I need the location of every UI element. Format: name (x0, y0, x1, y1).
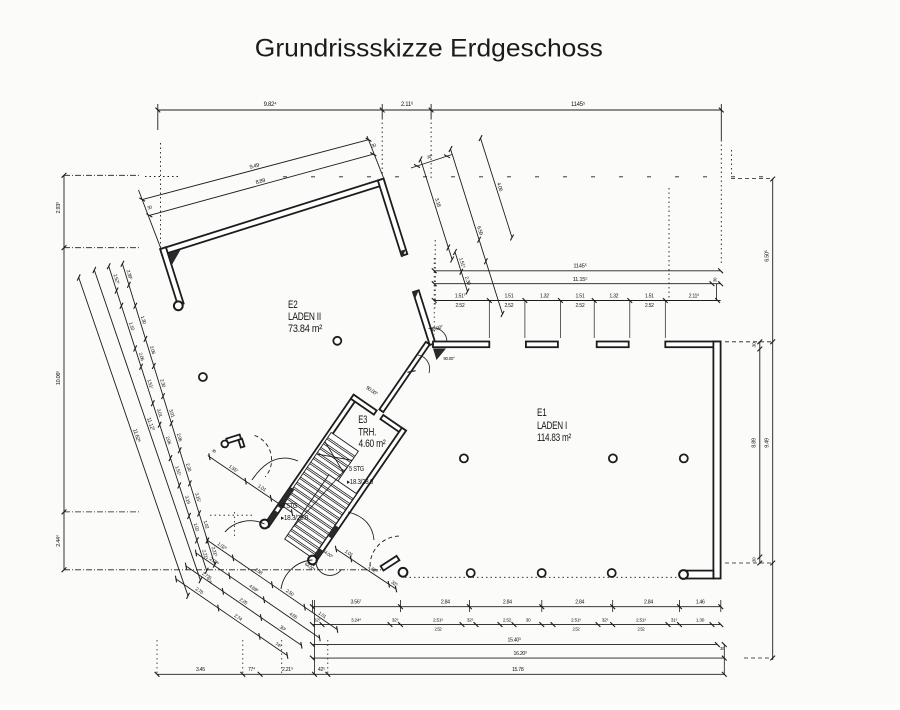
svg-text:TRH.: TRH. (358, 427, 376, 439)
svg-text:1145⁵: 1145⁵ (573, 263, 587, 270)
svg-text:2.84: 2.84 (575, 600, 584, 606)
svg-text:3.24⁴: 3.24⁴ (351, 618, 361, 624)
svg-text:1.51: 1.51 (576, 294, 585, 300)
svg-text:5 STG: 5 STG (349, 466, 364, 473)
svg-text:2.11⁶: 2.11⁶ (401, 101, 414, 108)
svg-text:2.52: 2.52 (638, 627, 646, 632)
svg-text:2.93³: 2.93³ (56, 202, 62, 214)
svg-text:2.51⁹: 2.51⁹ (636, 618, 646, 624)
svg-text:1.46: 1.46 (696, 600, 705, 606)
svg-text:32⁵: 32⁵ (602, 618, 609, 624)
svg-text:1.32: 1.32 (540, 294, 549, 300)
svg-text:2.52: 2.52 (576, 303, 585, 309)
svg-text:32⁵: 32⁵ (392, 618, 399, 624)
svg-text:1.51: 1.51 (645, 294, 654, 300)
svg-text:2.84: 2.84 (503, 600, 512, 606)
svg-text:1.30: 1.30 (696, 618, 705, 624)
svg-text:6.50⁵: 6.50⁵ (764, 250, 771, 262)
svg-text:Grundrissskizze Erdgeschoss: Grundrissskizze Erdgeschoss (255, 35, 603, 63)
svg-text:▸18.3/28.0: ▸18.3/28.0 (347, 479, 373, 486)
svg-text:1.51: 1.51 (504, 294, 513, 300)
svg-text:9.82⁴: 9.82⁴ (264, 101, 277, 108)
svg-text:8.89: 8.89 (752, 438, 758, 448)
svg-text:114.83 m²: 114.83 m² (537, 432, 571, 444)
svg-text:3.45: 3.45 (196, 667, 205, 673)
svg-text:2.52: 2.52 (435, 627, 443, 632)
svg-text:15.78: 15.78 (512, 667, 524, 673)
svg-text:LADEN I: LADEN I (537, 420, 567, 432)
svg-text:2.21⁹: 2.21⁹ (282, 667, 293, 673)
svg-text:2.52: 2.52 (456, 303, 465, 309)
svg-text:2.52: 2.52 (503, 618, 512, 624)
svg-text:42⁵: 42⁵ (318, 667, 325, 673)
svg-text:32⁵: 32⁵ (467, 618, 474, 624)
svg-text:30: 30 (752, 342, 758, 347)
svg-text:E3: E3 (358, 414, 367, 426)
svg-text:16.20³: 16.20³ (514, 651, 527, 657)
svg-text:2.51⁹: 2.51⁹ (433, 618, 443, 624)
svg-text:2.84: 2.84 (441, 600, 450, 606)
svg-text:1.51⁷: 1.51⁷ (455, 294, 466, 300)
svg-text:15.40³: 15.40³ (508, 638, 521, 644)
svg-text:3.56⁷: 3.56⁷ (351, 600, 362, 606)
svg-text:73.84 m²: 73.84 m² (288, 323, 323, 335)
svg-text:▸18.3/26.0: ▸18.3/26.0 (281, 515, 308, 522)
svg-text:2.51⁹: 2.51⁹ (571, 618, 581, 624)
svg-text:3 STG: 3 STG (282, 503, 297, 510)
svg-text:LADEN II: LADEN II (288, 311, 321, 323)
svg-text:2.84: 2.84 (644, 600, 653, 606)
svg-text:1145⁵: 1145⁵ (571, 101, 586, 108)
svg-text:4.60 m²: 4.60 m² (359, 438, 386, 450)
svg-text:2.11⁶: 2.11⁶ (689, 294, 700, 300)
svg-text:77⁴: 77⁴ (248, 667, 255, 673)
svg-text:2.52: 2.52 (573, 627, 581, 632)
svg-text:11.15⁵: 11.15⁵ (573, 276, 589, 283)
svg-text:90.00°: 90.00° (443, 356, 455, 361)
svg-text:10.06⁶: 10.06⁶ (55, 371, 62, 385)
svg-text:31⁵: 31⁵ (671, 618, 678, 624)
svg-text:30: 30 (752, 557, 758, 562)
svg-text:2.52: 2.52 (645, 303, 654, 309)
svg-text:2.44⁴: 2.44⁴ (55, 534, 62, 547)
svg-text:E1: E1 (537, 407, 547, 419)
svg-text:2.52: 2.52 (504, 303, 513, 309)
svg-text:30: 30 (526, 618, 531, 624)
svg-text:E2: E2 (288, 299, 298, 311)
svg-text:1.32: 1.32 (609, 294, 618, 300)
svg-text:9.49: 9.49 (765, 438, 771, 448)
